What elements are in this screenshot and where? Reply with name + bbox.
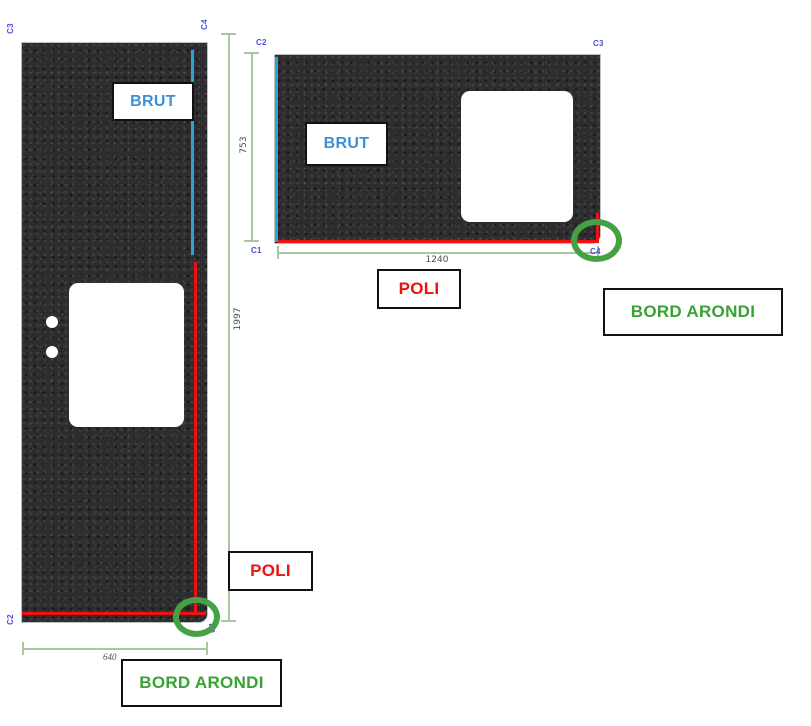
height-dimension-line — [228, 33, 230, 622]
dim-cap — [221, 33, 236, 35]
corner-label-c1: C1 — [251, 246, 262, 255]
drill-hole-1 — [46, 316, 58, 328]
corner-label-c2: C2 — [6, 614, 15, 625]
dim-cap — [244, 52, 259, 54]
corner-label-c3: C3 — [593, 39, 604, 48]
brut-label-text: BRUT — [130, 93, 176, 111]
width-dimension-line — [22, 648, 208, 650]
bord-arondi-label-text: BORD ARONDI — [631, 302, 756, 322]
corner-label-c3: C3 — [6, 23, 15, 34]
dim-cap — [277, 246, 279, 259]
left-slab-cutout — [69, 283, 184, 427]
polished-edge-line-bottom — [278, 240, 599, 243]
corner-label-c4: C4 — [200, 19, 209, 30]
polished-edge-line-vertical — [194, 262, 197, 614]
width-dimension-value: 640 — [103, 652, 117, 662]
raw-edge-line — [275, 57, 278, 242]
rounded-corner-highlight-circle — [173, 597, 220, 637]
dim-cap — [221, 620, 236, 622]
dim-cap — [244, 240, 259, 242]
drill-hole-2 — [46, 346, 58, 358]
poli-label-text: POLI — [399, 279, 440, 299]
bord-arondi-label-text: BORD ARONDI — [139, 673, 264, 693]
bord-arondi-label: BORD ARONDI — [603, 288, 783, 336]
brut-label: BRUT — [112, 82, 194, 121]
poli-label-text: POLI — [250, 561, 291, 581]
dim-cap — [22, 642, 24, 655]
poli-label: POLI — [377, 269, 461, 309]
raw-edge-line — [191, 50, 194, 255]
poli-label: POLI — [228, 551, 313, 591]
corner-label-c2: C2 — [256, 38, 267, 47]
width-dimension-line — [277, 252, 599, 254]
brut-label: BRUT — [305, 122, 388, 166]
brut-label-text: BRUT — [324, 135, 370, 153]
corner-label-c4: C4 — [590, 247, 601, 256]
diagram-canvas: C3 C4 C2 C1 1997 640 BRUT POLI BORD ARON… — [0, 0, 811, 726]
height-dimension-value: 1997 — [233, 301, 247, 337]
bord-arondi-label: BORD ARONDI — [121, 659, 282, 707]
dim-cap — [206, 642, 208, 655]
right-slab-cutout — [461, 91, 573, 222]
height-dimension-value: 753 — [239, 129, 253, 161]
width-dimension-value: 1240 — [417, 255, 457, 265]
